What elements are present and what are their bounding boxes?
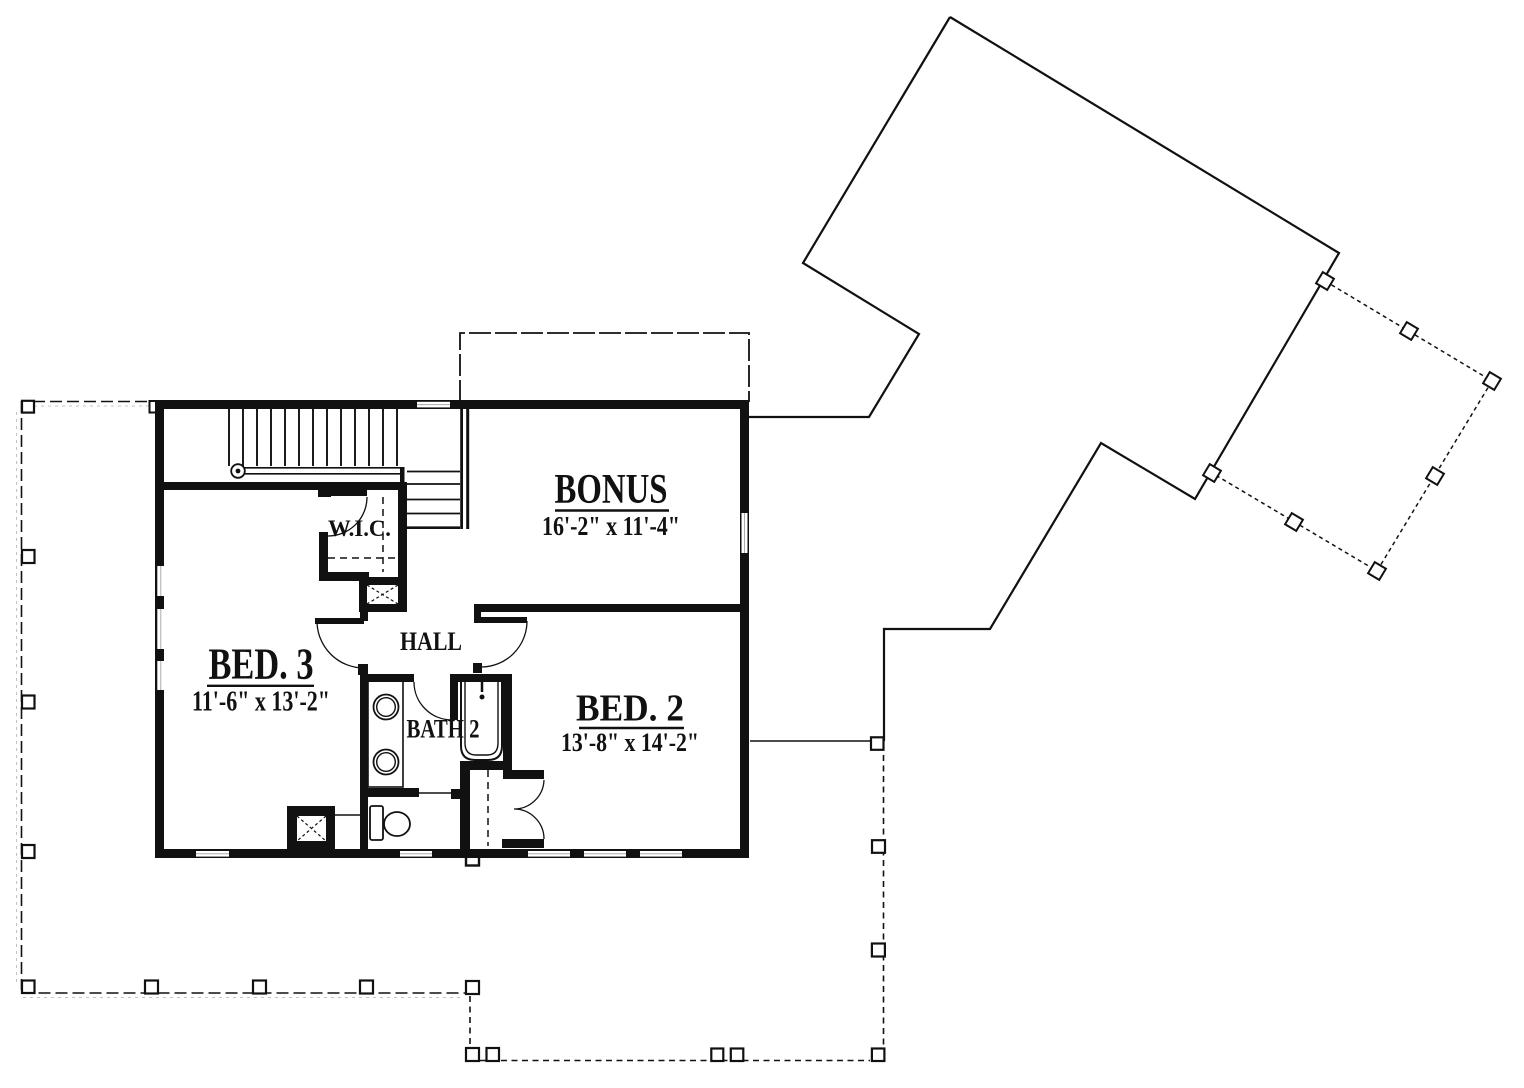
svg-text:W.I.C.: W.I.C. [328,516,391,541]
svg-text:BED. 3: BED. 3 [209,640,314,689]
svg-text:HALL: HALL [400,627,462,656]
svg-text:BONUS: BONUS [555,467,668,513]
svg-text:BATH 2: BATH 2 [407,715,480,744]
svg-text:BED. 2: BED. 2 [576,688,684,730]
svg-text:16'-2" x 11'-4": 16'-2" x 11'-4" [542,510,680,541]
svg-text:11'-6" x 13'-2": 11'-6" x 13'-2" [192,687,330,718]
svg-text:13'-8" x 14'-2": 13'-8" x 14'-2" [561,728,699,757]
